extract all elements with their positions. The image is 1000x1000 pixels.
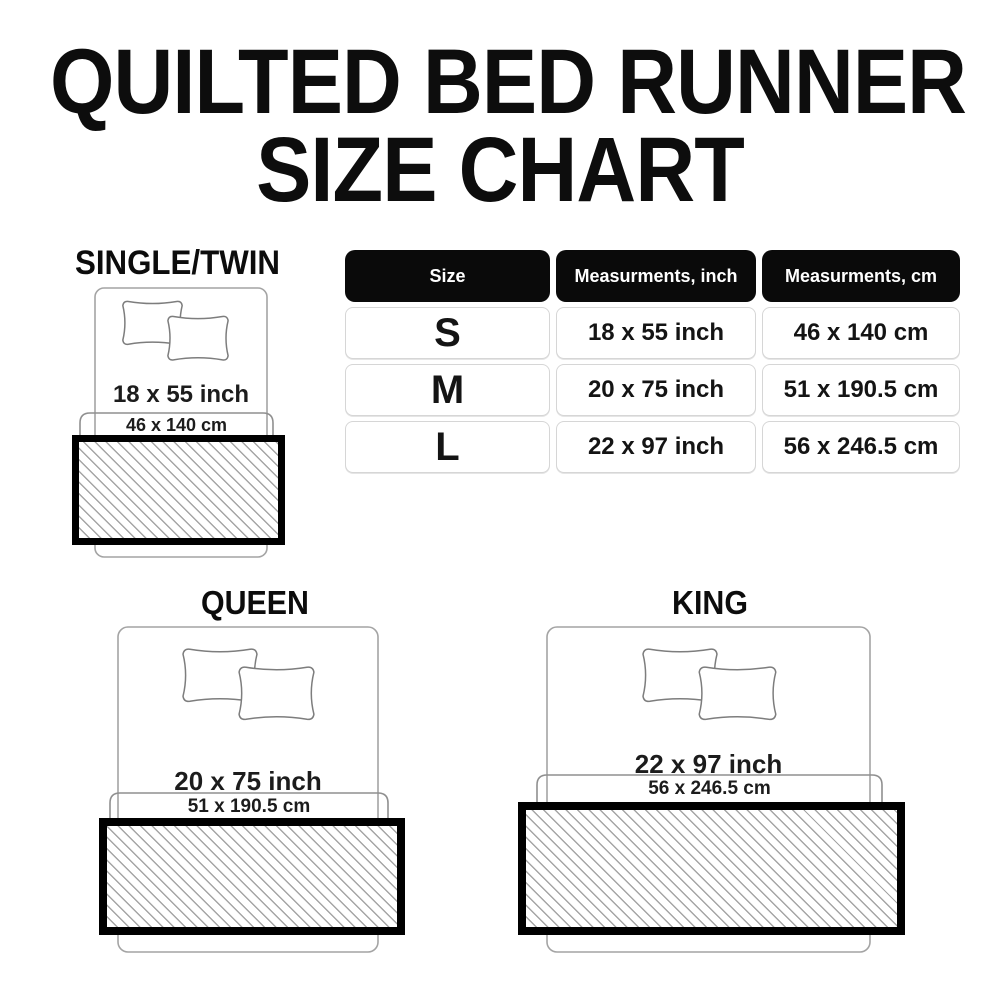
pillow-icon — [699, 667, 776, 719]
bed-runner-swatch — [518, 802, 905, 935]
inch-measurement-label: 20 x 75 inch — [118, 766, 378, 797]
inch-measurement-label: 18 x 55 inch — [95, 381, 267, 409]
diagram-title: SINGLE/TWIN — [69, 245, 285, 281]
cm-cell: 56 x 246.5 cm — [762, 421, 960, 473]
header-cell-cm: Measurments, cm — [762, 250, 960, 302]
diagram-single-twin: SINGLE/TWIN 18 x 55 inch 46 x 140 cm — [60, 245, 295, 560]
pillow-icon — [239, 667, 314, 719]
bed-runner-swatch — [99, 818, 405, 935]
diagram-queen: QUEEN 20 x 75 inch 51 x 190.5 cm — [95, 585, 415, 965]
inch-measurement-label: 22 x 97 inch — [547, 749, 870, 780]
header-cell-size: Size — [345, 250, 550, 302]
diagram-title: KING — [526, 585, 894, 621]
inch-cell: 18 x 55 inch — [556, 307, 756, 359]
size-cell: L — [345, 421, 550, 473]
cm-measurement-label: 46 x 140 cm — [80, 415, 273, 436]
header-cell-inch: Measurments, inch — [556, 250, 756, 302]
pillow-icon — [168, 316, 228, 360]
cm-cell: 51 x 190.5 cm — [762, 364, 960, 416]
size-cell: M — [345, 364, 550, 416]
size-cell: S — [345, 307, 550, 359]
main-title: QUILTED BED RUNNER SIZE CHART — [0, 38, 1000, 214]
title-line-2: SIZE CHART — [50, 126, 950, 214]
cm-measurement-label: 51 x 190.5 cm — [110, 796, 388, 818]
inch-cell: 22 x 97 inch — [556, 421, 756, 473]
cm-measurement-label: 56 x 246.5 cm — [537, 778, 882, 800]
diagram-king: KING 22 x 97 inch 56 x 246.5 cm — [510, 585, 910, 965]
cm-cell: 46 x 140 cm — [762, 307, 960, 359]
bed-runner-swatch — [72, 435, 285, 545]
diagram-title: QUEEN — [108, 585, 402, 621]
page: QUILTED BED RUNNER SIZE CHART Size Measu… — [0, 0, 1000, 1000]
inch-cell: 20 x 75 inch — [556, 364, 756, 416]
title-line-1: QUILTED BED RUNNER — [50, 38, 950, 126]
size-chart-table: Size Measurments, inch Measurments, cm S… — [345, 250, 962, 473]
